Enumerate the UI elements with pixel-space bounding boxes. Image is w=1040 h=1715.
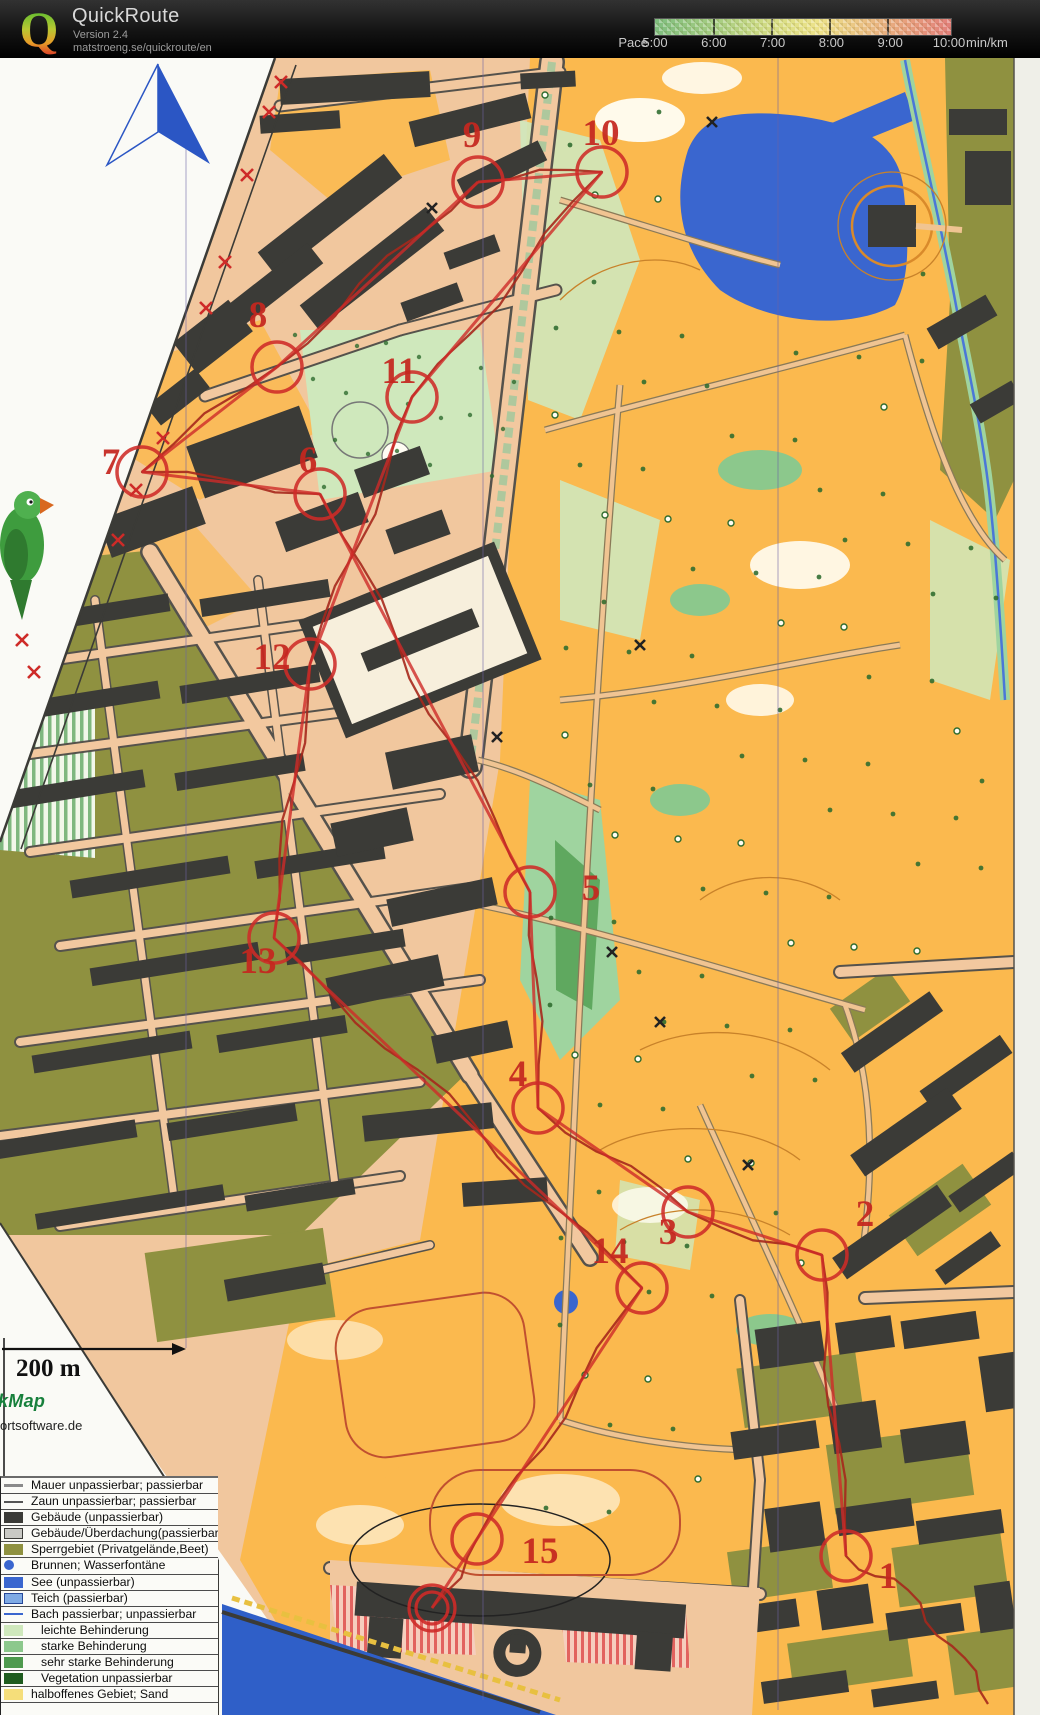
page-margin-right	[1014, 58, 1040, 1715]
scale-text: 200 m	[16, 1355, 81, 1383]
legend-symbol-restricted	[4, 1544, 23, 1555]
legend-symbol-fountain	[4, 1560, 14, 1570]
control-number: 13	[240, 941, 277, 982]
legend-row: starke Behinderung	[1, 1639, 218, 1655]
legend-symbol-pond	[4, 1593, 23, 1604]
legend-row: sehr starke Behinderung	[1, 1655, 218, 1671]
svg-text:Q: Q	[20, 2, 59, 56]
legend-label: Gebäude (unpassierbar)	[31, 1510, 163, 1524]
legend-symbol-lake	[4, 1577, 23, 1588]
control-number: 6	[299, 440, 318, 481]
legend-symbol-wall	[4, 1484, 23, 1487]
legend-label: Mauer unpassierbar; passierbar	[31, 1478, 203, 1492]
legend-symbol-green1	[4, 1625, 23, 1636]
legend-symbol-stream	[4, 1613, 23, 1615]
legend-row: Gebäude/Überdachung(passierbar)	[1, 1526, 218, 1542]
legend-label: Sperrgebiet (Privatgelände,Beet)	[31, 1542, 209, 1556]
control-number: 9	[463, 115, 482, 156]
legend-label: Zaun unpassierbar; passierbar	[31, 1494, 196, 1508]
legend-row: Gebäude (unpassierbar)	[1, 1510, 218, 1526]
legend-symbol-sand	[4, 1689, 23, 1700]
legend-symbol-green3	[4, 1657, 23, 1668]
legend-label: Teich (passierbar)	[31, 1591, 128, 1605]
legend-label: starke Behinderung	[41, 1639, 147, 1653]
legend-label: See (unpassierbar)	[31, 1575, 135, 1589]
pace-tick-mark	[887, 19, 889, 35]
legend-label: Brunnen; Wasserfontäne	[31, 1558, 165, 1572]
map-legend: Mauer unpassierbar; passierbarZaun unpas…	[0, 1476, 218, 1715]
control-number: 11	[382, 351, 417, 392]
legend-symbol-building	[4, 1512, 23, 1523]
pace-tick-mark	[829, 19, 831, 35]
legend-symbol-green2	[4, 1641, 23, 1652]
legend-row: Mauer unpassierbar; passierbar	[1, 1478, 218, 1494]
control-number: 3	[659, 1212, 678, 1253]
orienteering-map: 123456789101112131415	[0, 0, 1040, 1715]
control-number: 12	[254, 637, 291, 678]
app-title: QuickRoute	[72, 5, 180, 28]
legend-row: Sperrgebiet (Privatgelände,Beet)	[1, 1542, 218, 1558]
map-credit-url: ortsoftware.de	[0, 1418, 82, 1433]
pace-scale-bar[interactable]	[655, 19, 951, 35]
pace-tick-label: 8:00	[799, 35, 863, 50]
map-canvas[interactable]: 123456789101112131415	[0, 0, 1040, 1715]
legend-label: halboffenes Gebiet; Sand	[31, 1687, 168, 1701]
legend-label: Bach passierbar; unpassierbar	[31, 1607, 196, 1621]
legend-row: halboffenes Gebiet; Sand	[1, 1687, 218, 1703]
pace-tick-label: 7:00	[741, 35, 805, 50]
legend-symbol-fence	[4, 1501, 23, 1503]
control-number: 8	[249, 295, 268, 336]
legend-row: See (unpassierbar)	[1, 1575, 218, 1591]
legend-row: Brunnen; Wasserfontäne	[1, 1558, 218, 1574]
map-credit-name: kMap	[0, 1391, 45, 1412]
control-number: 10	[583, 113, 620, 154]
pace-unit: min/km	[966, 35, 1008, 50]
legend-symbol-green4	[4, 1673, 23, 1684]
legend-label: Vegetation unpassierbar	[41, 1671, 172, 1685]
control-number: 14	[592, 1231, 629, 1272]
app-url: matstroeng.se/quickroute/en	[73, 42, 212, 54]
app-version: Version 2.4	[73, 29, 128, 41]
legend-symbol-canopy	[4, 1528, 23, 1539]
legend-row: Zaun unpassierbar; passierbar	[1, 1494, 218, 1510]
legend-label: Gebäude/Überdachung(passierbar)	[31, 1526, 218, 1540]
control-number: 1	[879, 1556, 898, 1597]
pace-tick-mark	[771, 19, 773, 35]
control-number: 7	[102, 442, 121, 483]
control-number: 15	[522, 1531, 559, 1572]
pace-tick-mark	[713, 19, 715, 35]
legend-row: Teich (passierbar)	[1, 1591, 218, 1607]
legend-row: leichte Behinderung	[1, 1623, 218, 1639]
pace-tick-label: 5:00	[623, 35, 687, 50]
pace-tick-label: 9:00	[858, 35, 922, 50]
legend-row: Vegetation unpassierbar	[1, 1671, 218, 1687]
pace-tick-label: 6:00	[682, 35, 746, 50]
control-number: 4	[509, 1054, 528, 1095]
legend-row: Bach passierbar; unpassierbar	[1, 1607, 218, 1623]
quickroute-logo-icon: Q	[12, 2, 66, 56]
legend-label: leichte Behinderung	[41, 1623, 149, 1637]
legend-label: sehr starke Behinderung	[41, 1655, 174, 1669]
quickroute-export: 123456789101112131415 Q QuickRoute Versi…	[0, 0, 1040, 1715]
control-number: 2	[856, 1194, 875, 1235]
control-number: 5	[582, 868, 601, 909]
app-header: Q QuickRoute Version 2.4 matstroeng.se/q…	[0, 0, 1040, 58]
